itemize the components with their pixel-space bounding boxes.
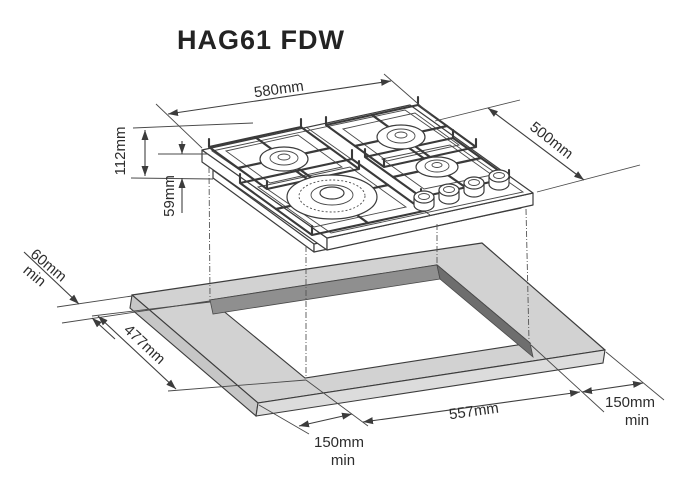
burner-back-right [377, 125, 425, 149]
front-clearance-value: 150mm [314, 434, 364, 451]
front-clearance-min: min [331, 452, 355, 469]
knob-3 [464, 177, 484, 197]
installation-diagram: 580mm 500mm 112mm 59mm 60mm min [0, 0, 700, 496]
knob-1 [414, 191, 434, 211]
dimension-right-clearance: 150mm min [582, 383, 655, 429]
dimension-front-clearance: 150mm min [299, 414, 364, 469]
hob-drawing [202, 97, 533, 252]
burner-wok-front-left [287, 175, 377, 219]
cutout-width-label: 557mm [448, 400, 500, 424]
knob-2 [439, 184, 459, 204]
page-title: HAG61 FDW [177, 25, 345, 55]
diagram-page: 580mm 500mm 112mm 59mm 60mm min [0, 0, 700, 496]
hob-width-label: 580mm [253, 78, 305, 102]
dimension-cutout-width: 557mm [363, 392, 580, 423]
knob-4 [489, 170, 509, 190]
right-clearance-value: 150mm [605, 394, 655, 411]
burner-mid-right [416, 157, 458, 177]
total-height-label: 112mm [112, 127, 129, 176]
right-clearance-min: min [625, 412, 649, 429]
burner-back-left [260, 147, 308, 171]
worktop-drawing [130, 243, 605, 416]
below-worktop-label: 59mm [161, 175, 178, 217]
hob-glass-top [202, 105, 533, 238]
